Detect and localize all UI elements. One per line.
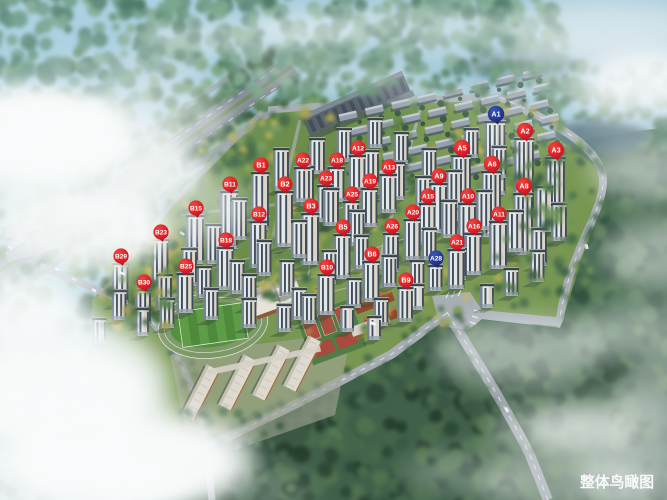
svg-text:B29: B29 — [115, 253, 127, 260]
svg-text:B5: B5 — [338, 222, 347, 231]
svg-text:A25: A25 — [346, 191, 358, 198]
svg-text:B23: B23 — [155, 229, 167, 236]
svg-text:A16: A16 — [468, 223, 480, 230]
svg-text:B18: B18 — [220, 237, 232, 244]
svg-text:B12: B12 — [253, 211, 265, 218]
svg-text:A21: A21 — [451, 239, 463, 246]
svg-text:A26: A26 — [386, 223, 398, 230]
svg-text:A15: A15 — [422, 193, 434, 200]
svg-text:A8: A8 — [519, 181, 528, 190]
svg-text:A19: A19 — [364, 178, 376, 185]
svg-text:B9: B9 — [401, 275, 410, 284]
svg-text:整体鸟瞰图: 整体鸟瞰图 — [579, 473, 654, 491]
svg-text:A12: A12 — [352, 145, 364, 152]
svg-text:B30: B30 — [138, 279, 150, 286]
svg-text:A28: A28 — [430, 255, 442, 262]
svg-text:A9: A9 — [434, 171, 443, 180]
svg-text:A13: A13 — [383, 164, 395, 171]
svg-text:A18: A18 — [331, 157, 343, 164]
svg-text:A2: A2 — [520, 126, 529, 135]
svg-text:A22: A22 — [297, 157, 309, 164]
svg-text:B1: B1 — [256, 160, 265, 169]
svg-text:A3: A3 — [551, 145, 560, 154]
svg-text:A20: A20 — [407, 209, 419, 216]
svg-text:A11: A11 — [493, 211, 505, 218]
svg-text:A23: A23 — [320, 175, 332, 182]
svg-text:A6: A6 — [487, 159, 496, 168]
svg-text:A10: A10 — [462, 193, 474, 200]
svg-text:B6: B6 — [367, 249, 376, 258]
svg-text:B11: B11 — [224, 181, 236, 188]
svg-text:B10: B10 — [321, 264, 333, 271]
svg-text:B15: B15 — [190, 205, 202, 212]
svg-text:A5: A5 — [457, 143, 466, 152]
svg-text:B3: B3 — [306, 201, 315, 210]
svg-text:B2: B2 — [280, 179, 289, 188]
svg-text:B25: B25 — [180, 263, 192, 270]
svg-text:A1: A1 — [491, 109, 500, 118]
